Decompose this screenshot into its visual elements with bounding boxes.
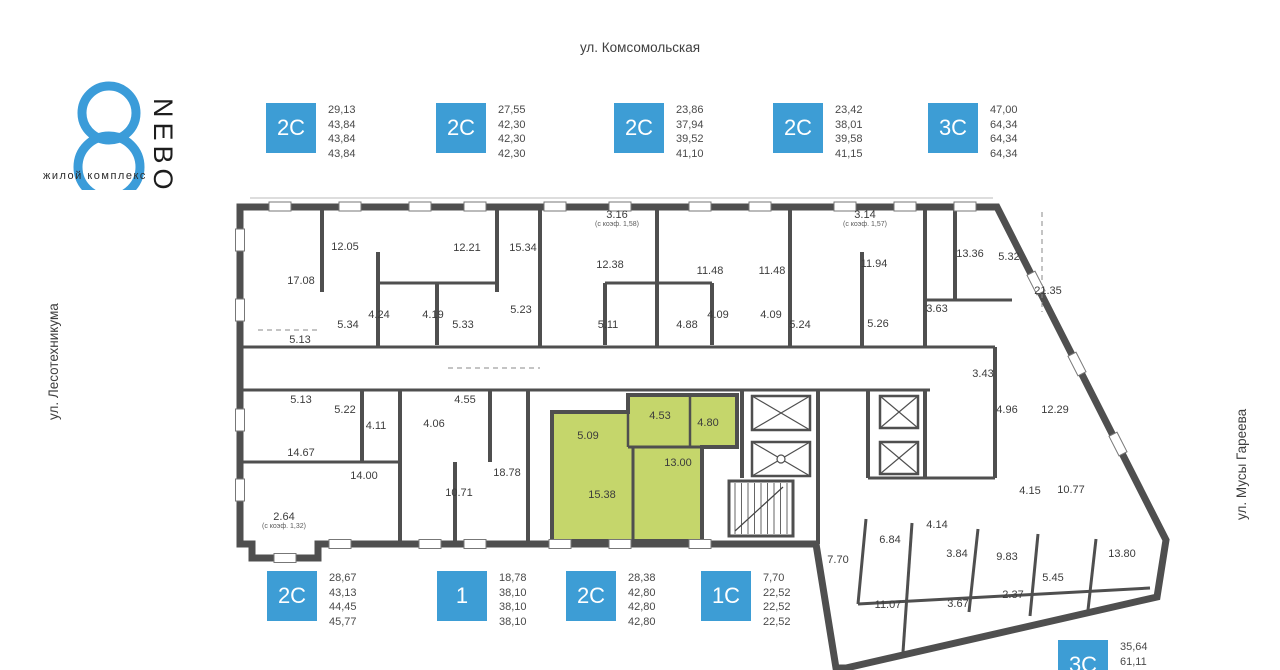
room-area-label: 15.34	[509, 242, 537, 254]
room-area-label: 7.70	[827, 554, 848, 566]
room-area-label: 14.00	[350, 470, 378, 482]
room-area-label: 14.67	[287, 447, 315, 459]
apartment-type-card: 118,78 38,10 38,10 38,10	[437, 571, 567, 623]
room-area-label: 5.26	[867, 318, 888, 330]
room-area-label: 4.06	[423, 418, 444, 430]
room-area-label: 13.80	[1108, 548, 1136, 560]
logo-subtitle: жилой комплекс	[43, 170, 147, 182]
room-area-label: 15.38	[588, 489, 616, 501]
street-label-right: ул. Мусы Гареева	[1234, 409, 1249, 520]
room-area-label: 3.63	[926, 303, 947, 315]
room-area-label: 2.37	[1002, 589, 1023, 601]
room-area-label: 11.94	[861, 258, 888, 270]
apartment-type-card: 2С23,86 37,94 39,52 41,10	[614, 103, 744, 155]
apartment-type-card: 3С47,00 64,34 64,34 64,34	[928, 103, 1058, 155]
room-area-label: 5.22	[334, 404, 355, 416]
room-area-label: 4.96	[996, 404, 1017, 416]
room-area-label: 4.24	[368, 309, 389, 321]
apartment-areas: 28,38 42,80 42,80 42,80	[628, 571, 656, 629]
apartment-type-badge: 2С	[436, 103, 486, 153]
room-area-label: 4.14	[926, 519, 947, 531]
apartment-areas: 23,42 38,01 39,58 41,15	[835, 103, 863, 161]
room-area-label: 13.00	[664, 457, 692, 469]
room-area-label: 5.33	[452, 319, 473, 331]
room-area-label: 11.07	[875, 599, 902, 611]
apartment-type-badge: 2С	[267, 571, 317, 621]
room-area-label: 3.84	[946, 548, 967, 560]
apartment-areas: 29,13 43,84 43,84 43,84	[328, 103, 356, 161]
room-area-label: 5.34	[337, 319, 358, 331]
apartment-type-badge: 2С	[266, 103, 316, 153]
room-area-label: 10.77	[1057, 484, 1085, 496]
logo-8-icon	[36, 40, 206, 190]
apartment-type-card: 3С35,64 61,11	[1058, 640, 1188, 670]
apartment-type-badge: 2С	[566, 571, 616, 621]
apartment-type-badge: 2С	[614, 103, 664, 153]
room-area-label: 3.16	[606, 209, 627, 221]
room-area-label: 4.80	[697, 417, 718, 429]
room-area-label: 4.53	[649, 410, 670, 422]
room-area-label: 4.55	[454, 394, 475, 406]
apartment-areas: 7,70 22,52 22,52 22,52	[763, 571, 791, 629]
apartment-type-badge: 1	[437, 571, 487, 621]
staircase	[729, 481, 793, 536]
room-area-coefficient: (с коэф. 1,58)	[595, 221, 639, 228]
room-area-label: 5.13	[290, 394, 311, 406]
room-area-coefficient: (с коэф. 1,57)	[843, 221, 887, 228]
accessible-elevator-icon	[777, 455, 785, 463]
street-label-top: ул. Комсомольская	[580, 40, 700, 55]
apartment-type-card: 1С7,70 22,52 22,52 22,52	[701, 571, 831, 623]
apartment-type-card: 2С23,42 38,01 39,58 41,15	[773, 103, 903, 155]
room-area-label: 4.09	[760, 309, 781, 321]
apartment-areas: 35,64 61,11	[1120, 640, 1148, 669]
room-area-label: 12.05	[331, 241, 359, 253]
room-area-label: 4.09	[707, 309, 728, 321]
room-area-label: 11.48	[759, 265, 786, 277]
apartment-type-badge: 3С	[928, 103, 978, 153]
apartment-areas: 27,55 42,30 42,30 42,30	[498, 103, 526, 161]
room-area-label: 21.35	[1034, 285, 1062, 297]
room-area-label: 9.83	[996, 551, 1017, 563]
room-area-label: 3.67	[947, 598, 968, 610]
room-area-label: 12.29	[1041, 404, 1069, 416]
apartment-type-badge: 3С	[1058, 640, 1108, 670]
room-area-label: 5.09	[577, 430, 598, 442]
apartment-areas: 47,00 64,34 64,34 64,34	[990, 103, 1018, 161]
apartment-type-card: 2С29,13 43,84 43,84 43,84	[266, 103, 396, 155]
room-area-label: 5.24	[789, 319, 810, 331]
room-area-label: 3.43	[972, 368, 993, 380]
room-area-label: 5.23	[510, 304, 531, 316]
logo-name: NEBO	[147, 98, 178, 195]
room-area-coefficient: (с коэф. 1,32)	[262, 523, 306, 530]
room-area-label: 4.88	[676, 319, 697, 331]
room-area-label: 4.15	[1019, 485, 1040, 497]
room-area-label: 5.32	[998, 251, 1019, 263]
apartment-type-card: 2С28,67 43,13 44,45 45,77	[267, 571, 397, 623]
floor-plan-page: 17.0812.0512.2115.345.344.244.195.335.23…	[0, 0, 1280, 670]
apartment-areas: 18,78 38,10 38,10 38,10	[499, 571, 527, 629]
room-area-label: 5.13	[289, 334, 310, 346]
room-area-label: 4.19	[422, 309, 443, 321]
apartment-type-badge: 2С	[773, 103, 823, 153]
apartment-type-card: 2С27,55 42,30 42,30 42,30	[436, 103, 566, 155]
room-area-label: 5.11	[598, 319, 619, 331]
room-area-label: 4.11	[366, 420, 387, 432]
apartment-areas: 23,86 37,94 39,52 41,10	[676, 103, 704, 161]
room-area-label: 2.64	[273, 511, 294, 523]
apartment-type-badge: 1С	[701, 571, 751, 621]
room-area-label: 10.71	[445, 487, 473, 499]
room-area-label: 12.21	[453, 242, 481, 254]
room-area-label: 12.38	[596, 259, 624, 271]
room-area-label: 18.78	[493, 467, 521, 479]
room-area-label: 5.45	[1042, 572, 1063, 584]
street-label-left: ул. Лесотехникума	[46, 303, 61, 420]
room-area-label: 17.08	[287, 275, 315, 287]
logo: NEBO	[36, 40, 206, 190]
apartment-type-card: 2С28,38 42,80 42,80 42,80	[566, 571, 696, 623]
room-area-label: 6.84	[879, 534, 900, 546]
room-area-label: 3.14	[854, 209, 875, 221]
apartment-areas: 28,67 43,13 44,45 45,77	[329, 571, 357, 629]
room-area-label: 11.48	[697, 265, 724, 277]
room-area-label: 13.36	[956, 248, 984, 260]
